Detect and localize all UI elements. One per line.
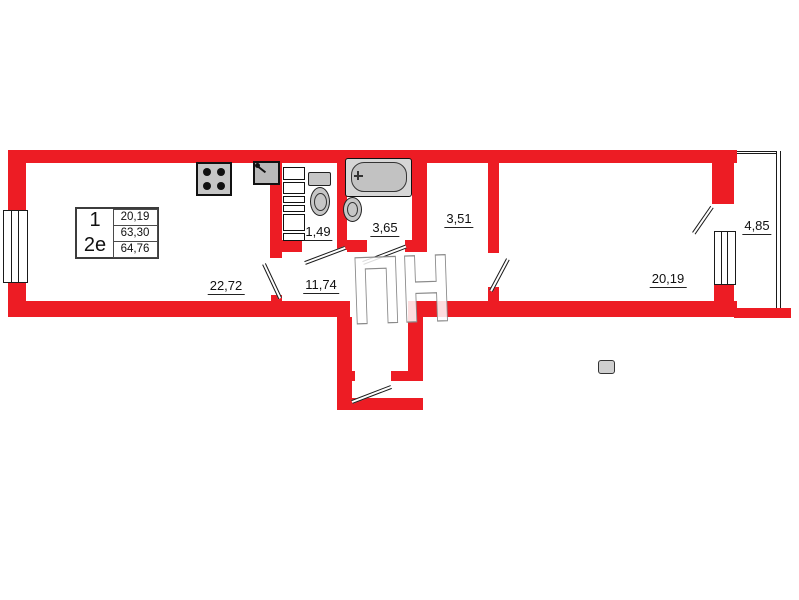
toilet-tank-icon [308, 172, 331, 186]
area-label-bathroom: 3,65 [370, 220, 399, 237]
bedroom-door-leaf-icon [489, 258, 509, 292]
area-label-bedroom: 20,19 [650, 271, 687, 288]
wall-balcony-upper [712, 150, 734, 204]
area-living-value: 20,19 [113, 209, 158, 226]
washbasin-icon [343, 197, 362, 222]
window-icon [3, 210, 28, 283]
wall-bottom-right [408, 301, 737, 317]
rooms-count: 1 [89, 210, 100, 231]
balcony-bottom-strip [734, 308, 791, 318]
floor-plan: 1 2е 20,19 63,30 64,76 22,72 11,74 1,49 … [0, 0, 799, 600]
area-label-wc: 1,49 [303, 224, 332, 241]
balcony-outline-right [776, 151, 781, 309]
wall-balcony-lower [714, 283, 734, 301]
wall-vestibule-bottom [337, 398, 423, 410]
wall-vestibule-left [337, 317, 352, 410]
wall-corridor-bedroom [488, 163, 499, 253]
area-label-corridor: 3,51 [444, 211, 473, 228]
area-flat-value: 63,30 [113, 225, 158, 242]
flat-type: 2е [84, 235, 106, 256]
watermark: ПН [350, 245, 453, 337]
wall-bottom-left [8, 301, 350, 317]
area-total-value: 64,76 [113, 241, 158, 258]
info-box: 1 2е 20,19 63,30 64,76 [75, 207, 159, 259]
area-label-hallway: 11,74 [303, 277, 339, 294]
entry-door-jamb-left [337, 371, 355, 381]
area-label-balcony: 4,85 [742, 218, 771, 235]
balcony-door-leaf-icon [692, 206, 714, 235]
toilet-icon [310, 187, 330, 216]
entry-door-jamb-right [391, 371, 423, 381]
wall-bathroom-corridor [412, 163, 427, 243]
stove-icon [196, 162, 232, 196]
balcony-window-icon [714, 231, 736, 285]
kitchen-door-leaf-icon [262, 263, 282, 299]
wall-left-upper [8, 150, 26, 210]
balcony-outline-top [734, 151, 778, 154]
area-label-kitchen-living: 22,72 [208, 278, 245, 295]
shaft-ladder-icon [283, 167, 305, 247]
wc-door-leaf-icon [304, 246, 346, 265]
bathtub-icon [345, 158, 412, 197]
kitchen-sink-icon [253, 161, 280, 185]
